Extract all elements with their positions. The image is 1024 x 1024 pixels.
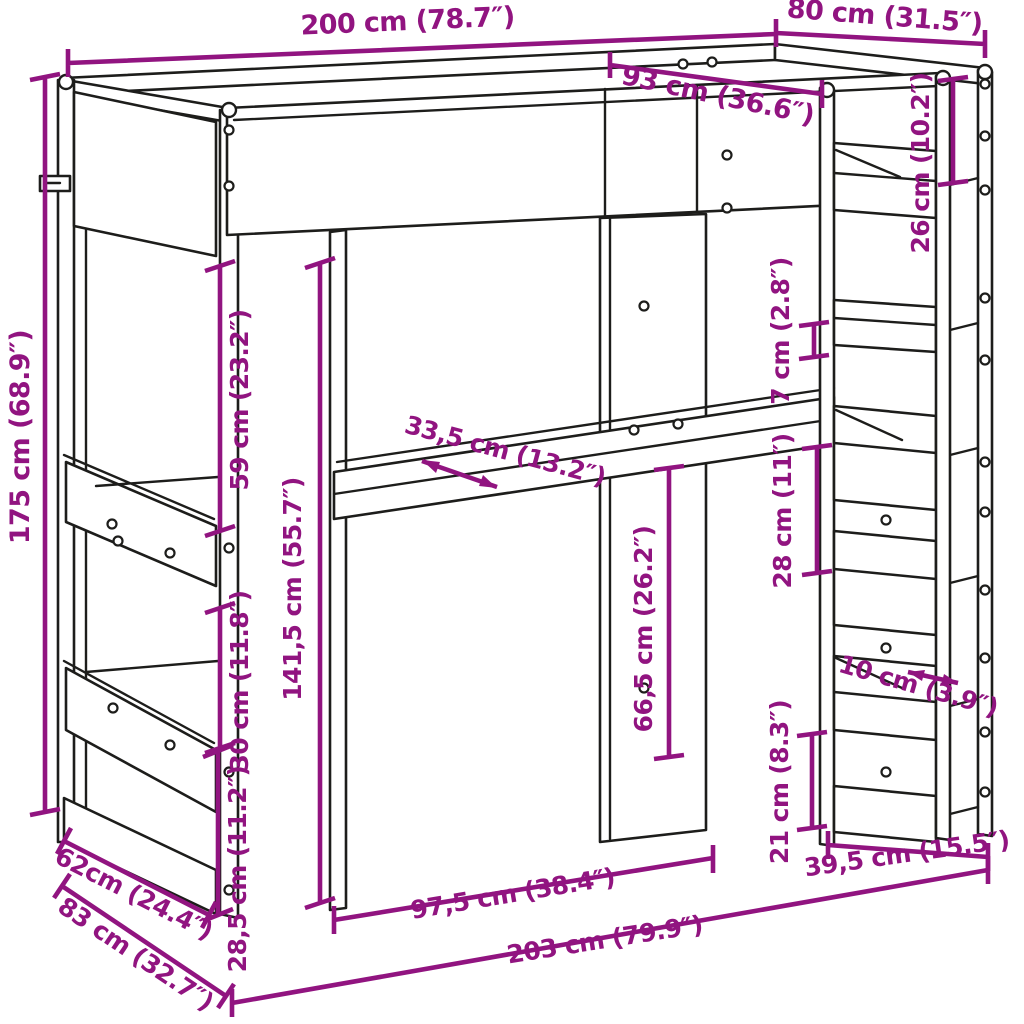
desk xyxy=(334,388,834,519)
dimension-diagram: 200 cm (78.7″) 80 cm (31.5″) 93 cm (36.6… xyxy=(0,0,1024,1024)
dimension-label: 175 cm (68.9″) xyxy=(5,330,36,544)
dimension-label: 66,5 cm (26.2″) xyxy=(629,526,658,733)
tower-rung xyxy=(834,300,936,352)
tower-bottom-band xyxy=(834,786,936,842)
dimension-label: 7 cm (2.8″) xyxy=(766,257,795,404)
dimension-label: 59 cm (23.2″) xyxy=(225,310,254,491)
mid-leg xyxy=(330,230,346,910)
dimension-label: 200 cm (78.7″) xyxy=(300,1,515,41)
dimension-label: 26 cm (10.2″) xyxy=(906,73,935,254)
dimension-clearance-height: 141,5 cm (55.7″) xyxy=(278,258,335,908)
dimension-label: 28,5 cm (11.2″) xyxy=(223,766,252,973)
dimension-label: 141,5 cm (55.7″) xyxy=(278,477,307,700)
dimension-tower-bottom-gap: 21 cm (8.3″) xyxy=(765,700,827,864)
dimension-label: 21 cm (8.3″) xyxy=(765,700,794,864)
shelf-board-lower xyxy=(66,668,216,812)
tower-mid-post xyxy=(936,76,950,840)
shelf-board-upper xyxy=(66,462,216,586)
dimension-label: 203 cm (79.9″) xyxy=(505,910,705,970)
headboard-panel xyxy=(74,92,216,256)
diagram-canvas: 200 cm (78.7″) 80 cm (31.5″) 93 cm (36.6… xyxy=(0,0,1024,1024)
dimension-label: 97,5 cm (38.4″) xyxy=(408,862,617,925)
dimension-label: 28 cm (11″) xyxy=(768,433,797,588)
tower-shelf-c xyxy=(834,406,936,510)
tower-shelf-d xyxy=(834,531,936,635)
tower-depth-connectors xyxy=(950,178,978,814)
furniture-drawing xyxy=(40,44,992,918)
